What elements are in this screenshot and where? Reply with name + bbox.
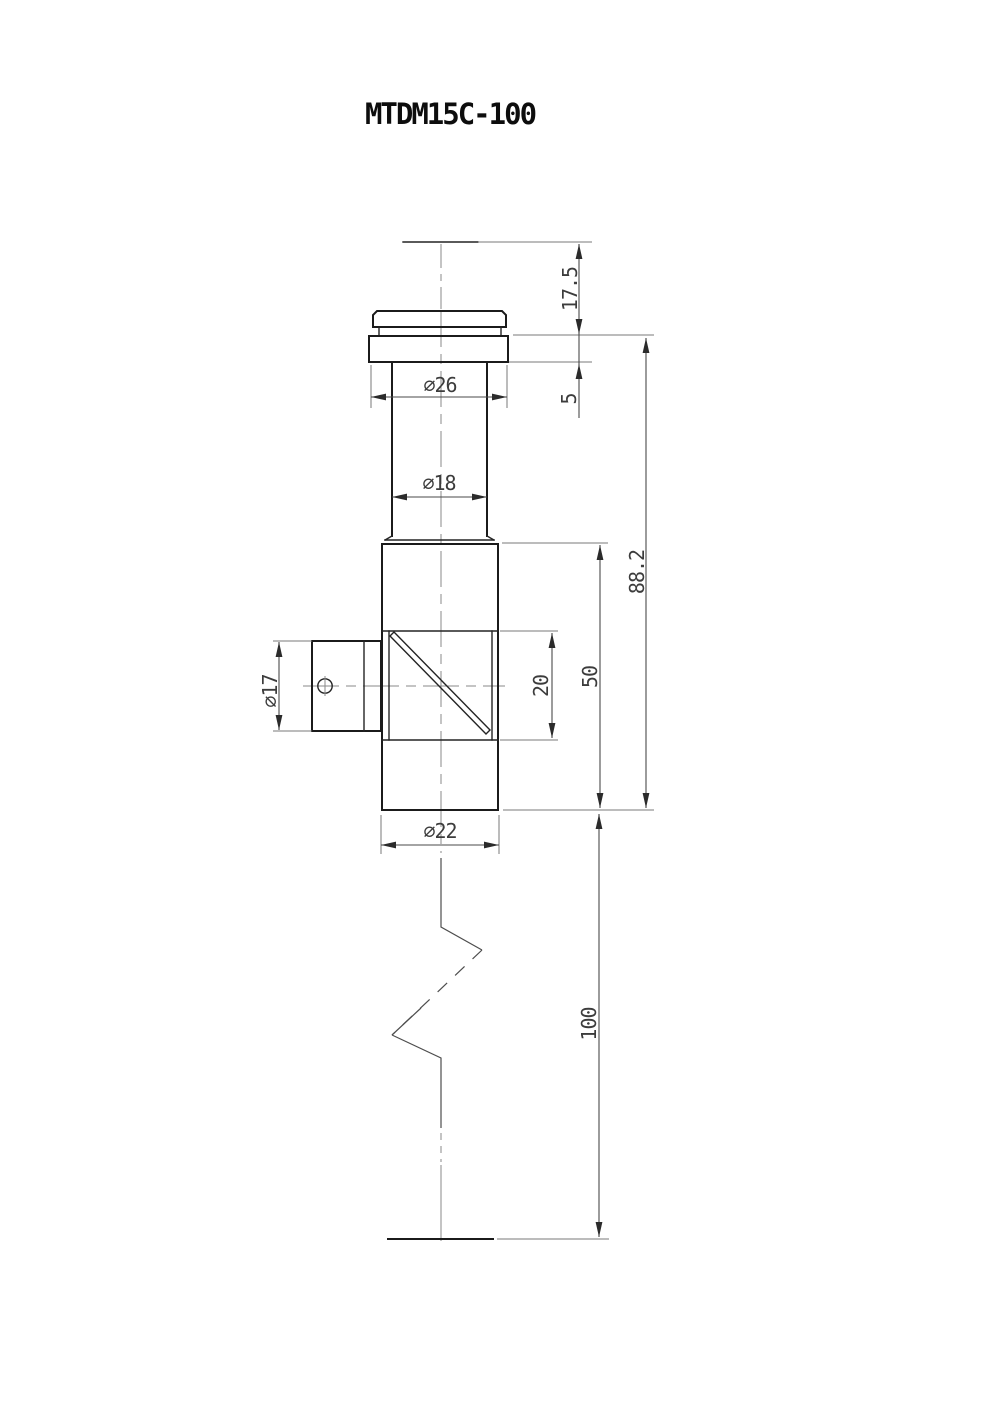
dim-label-head-height: 17.5 <box>558 267 582 311</box>
center-lines <box>303 244 505 1241</box>
drawing-sheet: MTDM15C-100 <box>0 0 992 1403</box>
technical-drawing: MTDM15C-100 <box>0 0 992 1403</box>
dim-label-lower-tube-length: 100 <box>577 1007 601 1040</box>
dimension-dia18: ⌀18 <box>392 471 487 497</box>
dim-label-upper-tube-diameter: ⌀18 <box>422 471 455 495</box>
mirror-plate <box>390 632 490 734</box>
dim-label-side-port-diameter: ⌀17 <box>258 674 282 707</box>
dimension-5: 5 <box>557 334 581 418</box>
mounting-flange <box>369 336 508 362</box>
dimension-dia22: ⌀22 <box>381 819 499 845</box>
part-number-title: MTDM15C-100 <box>365 97 536 131</box>
part-outline <box>312 242 508 1239</box>
break-line <box>392 858 482 1128</box>
eyepiece-cap <box>373 311 506 327</box>
dimension-88-2: 88.2 <box>625 338 649 808</box>
dim-label-body-diameter: ⌀22 <box>423 819 456 843</box>
dim-label-flange-thickness: 5 <box>557 393 581 404</box>
dimension-dia17: ⌀17 <box>258 642 282 730</box>
dimension-50: 50 <box>578 545 602 808</box>
dim-label-height-below-flange: 88.2 <box>625 550 649 594</box>
dimension-100: 100 <box>577 814 601 1237</box>
main-body <box>382 544 498 810</box>
dim-label-body-height: 50 <box>578 666 602 688</box>
dimension-20: 20 <box>529 633 553 738</box>
dimension-17-5: 17.5 <box>558 244 582 334</box>
dim-label-prism-window-height: 20 <box>529 675 553 697</box>
dim-label-flange-diameter: ⌀26 <box>423 373 456 397</box>
